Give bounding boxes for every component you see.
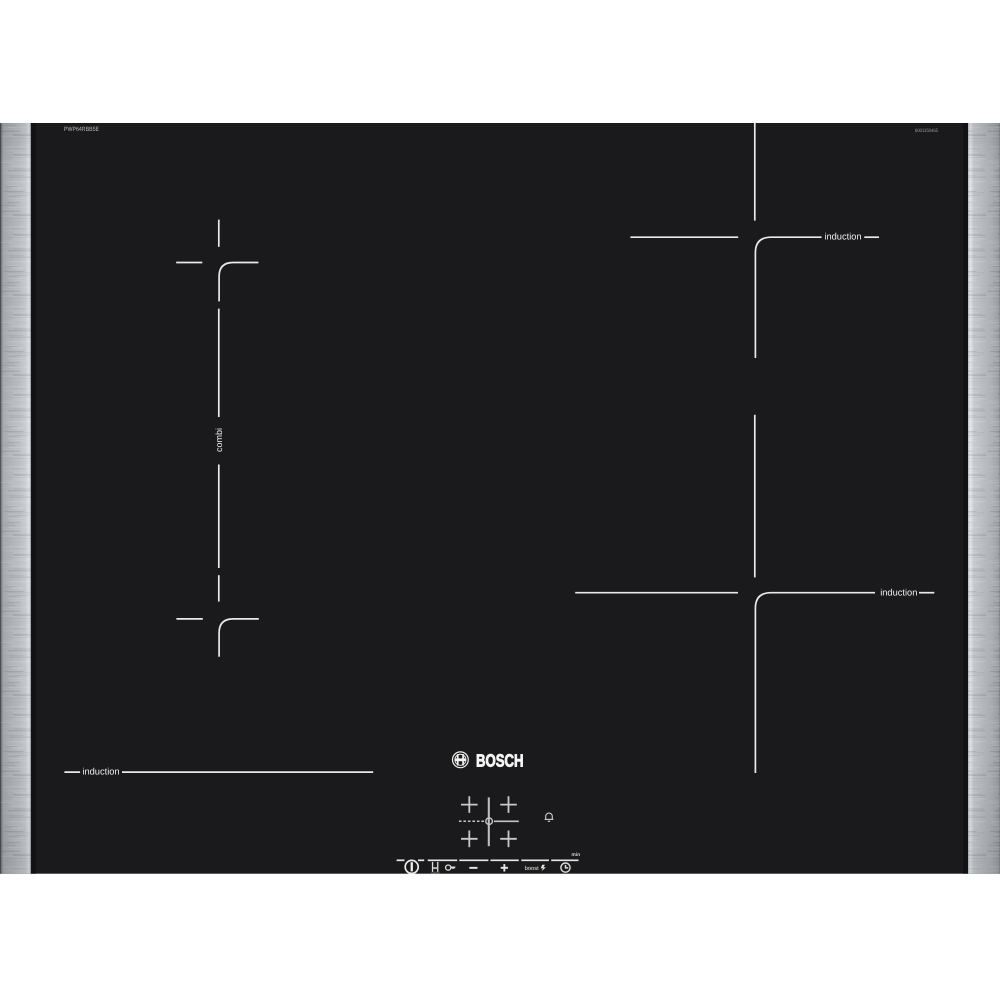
svg-text:induction: induction [824, 232, 861, 242]
svg-text:induction: induction [880, 587, 917, 597]
svg-text:combi: combi [214, 428, 224, 452]
svg-text:min: min [571, 852, 580, 858]
svg-text:PWP64RBB5E: PWP64RBB5E [64, 126, 99, 133]
svg-text:induction: induction [82, 766, 119, 776]
svg-text:boost: boost [525, 865, 540, 872]
svg-text:8001150465: 8001150465 [915, 128, 938, 134]
svg-text:BOSCH: BOSCH [476, 750, 524, 770]
svg-text:combi: combi [431, 870, 440, 874]
